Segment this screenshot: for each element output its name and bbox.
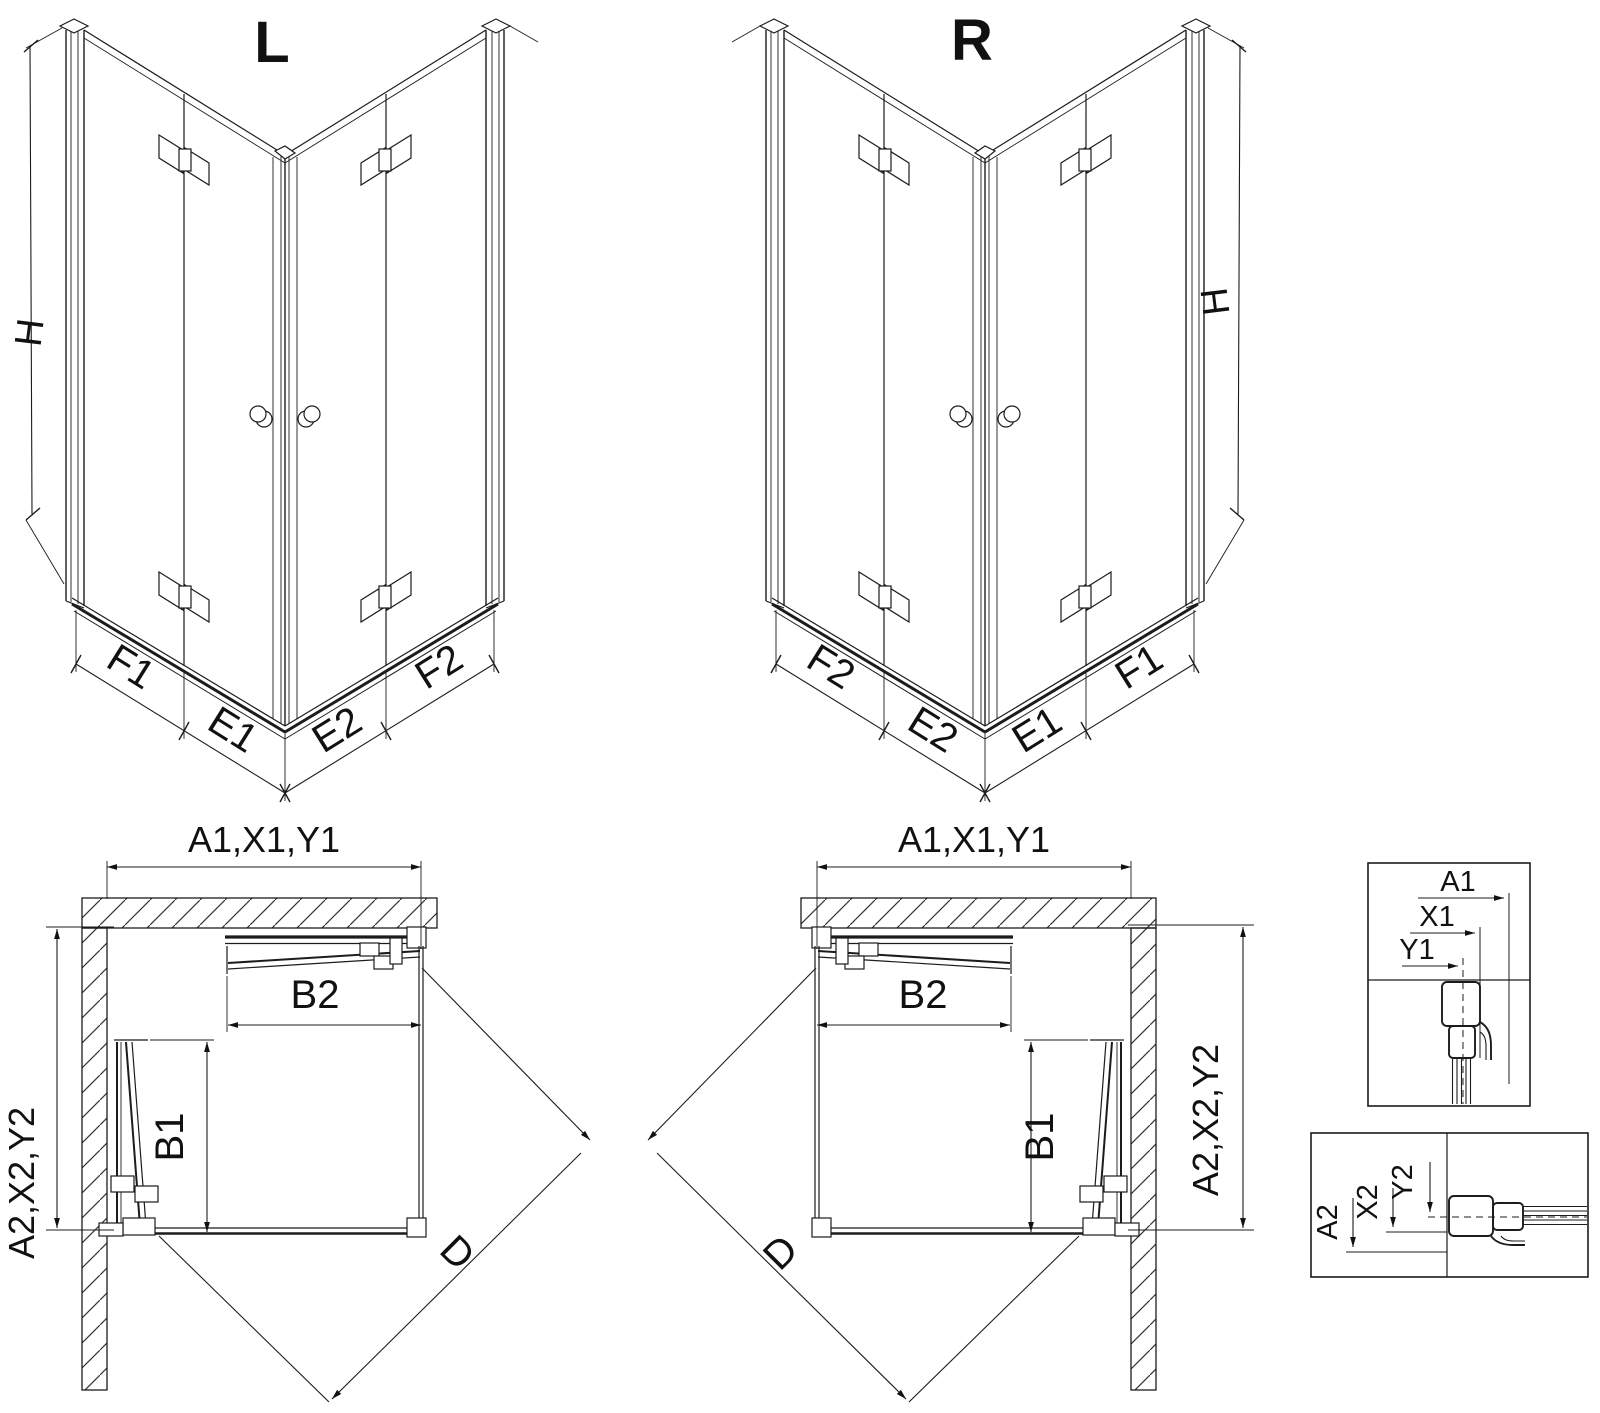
detail-width-label-x1: X1 <box>1419 901 1454 933</box>
detail-width-label-y1: Y1 <box>1399 934 1434 966</box>
plan-right-door-side-label: B1 <box>1018 1113 1062 1162</box>
plan-right-top-wall-hatch <box>801 898 1156 928</box>
detail-depth-label-a2: A2 <box>1312 1204 1344 1239</box>
plan-left-door-side-label: B1 <box>148 1113 192 1162</box>
detail-depth-label-x2: X2 <box>1352 1184 1384 1219</box>
technical-drawing: L H F1 E1 E2 F2 R H F2 E2 E1 F1 A1,X1,Y1… <box>0 0 1600 1413</box>
plan-left-door-top-label: B2 <box>291 973 340 1017</box>
detail-depth-label-y2: Y2 <box>1387 1164 1419 1199</box>
plan-right-side-wall-hatch <box>1131 928 1156 1390</box>
drawing-page: L H F1 E1 E2 F2 R H F2 E2 E1 F1 A1,X1,Y1… <box>0 0 1600 1413</box>
plan-left-side-wall-hatch <box>82 928 107 1390</box>
plan-left-top-wall-hatch <box>82 898 437 928</box>
iso-right-title: R <box>951 8 993 73</box>
plan-left-depth-label: A2,X2,Y2 <box>1 1107 42 1259</box>
detail-width-label-a1: A1 <box>1440 866 1475 898</box>
iso-right-height-label: H <box>1194 285 1239 317</box>
plan-left-width-label: A1,X1,Y1 <box>188 819 340 860</box>
iso-left-title: L <box>254 10 289 75</box>
iso-left-height-label: H <box>8 316 53 348</box>
plan-right-depth-label: A2,X2,Y2 <box>1185 1044 1226 1196</box>
plan-right-door-top-label: B2 <box>899 973 948 1017</box>
plan-right-width-label: A1,X1,Y1 <box>898 819 1050 860</box>
